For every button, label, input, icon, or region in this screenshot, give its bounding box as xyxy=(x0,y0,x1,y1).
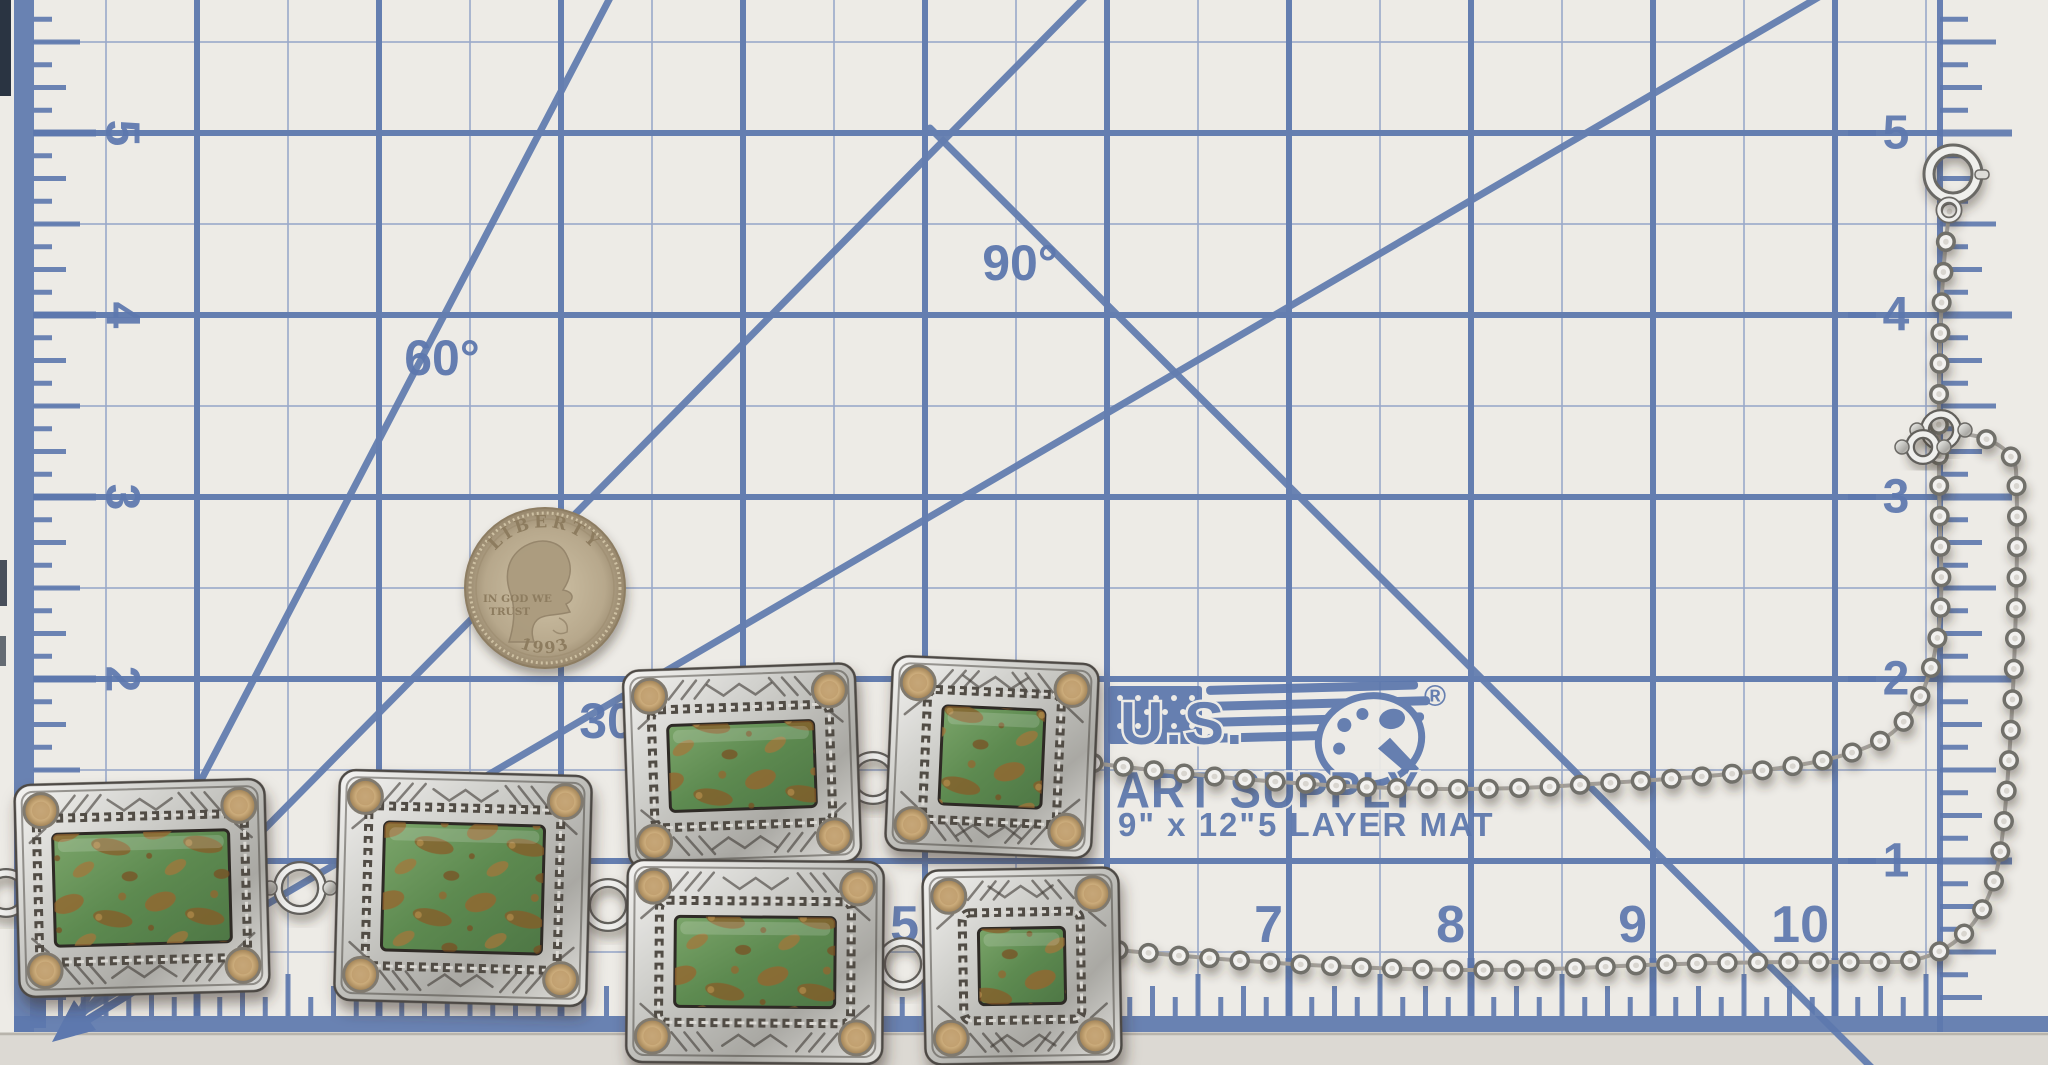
left-ruler-number: 3 xyxy=(96,484,149,511)
mat-layers-label: 5 LAYER MAT xyxy=(1258,806,1495,843)
plaque-6 xyxy=(922,867,1121,1064)
mat-left-edge-dark xyxy=(0,0,11,96)
bottom-ruler-number: 10 xyxy=(1771,896,1829,954)
mat-size-label: 9" x 12" xyxy=(1118,806,1257,843)
scene-svg: 60° 90° 30° 5 4 3 2 5 4 3 2 1 5 6 7 8 9 … xyxy=(0,0,2048,1065)
bottom-ruler-number: 7 xyxy=(1254,896,1283,954)
right-ruler-number: 3 xyxy=(1883,471,1910,524)
registered-mark: ® xyxy=(1424,680,1446,713)
photo-jewelry-on-cutting-mat: 60° 90° 30° 5 4 3 2 5 4 3 2 1 5 6 7 8 9 … xyxy=(0,0,2048,1065)
plaque-5 xyxy=(885,656,1099,859)
bottom-ruler-number: 9 xyxy=(1618,896,1647,954)
plaque-2 xyxy=(334,770,592,1007)
bottom-ruler-number: 8 xyxy=(1436,896,1465,954)
mat-left-edge-mark2 xyxy=(0,636,6,666)
plaque-4 xyxy=(626,860,884,1064)
left-ruler-number: 5 xyxy=(96,120,149,147)
right-ruler-number: 1 xyxy=(1883,835,1910,888)
right-ruler-number: 2 xyxy=(1883,653,1910,706)
plaque-1 xyxy=(14,779,269,997)
left-ruler-number: 4 xyxy=(96,302,149,329)
mat-left-edge-mark xyxy=(0,560,7,606)
logo-line1: U.S. xyxy=(1120,690,1245,757)
angle-label-90: 90° xyxy=(982,235,1058,291)
coin-motto-line2: TRUST xyxy=(489,606,530,618)
right-ruler-number: 4 xyxy=(1883,289,1910,342)
left-ruler-number: 2 xyxy=(96,666,149,693)
right-ruler-number: 5 xyxy=(1883,107,1910,160)
coin-motto-line1: IN GOD WE xyxy=(483,593,552,605)
plaque-3 xyxy=(623,663,862,869)
quarter-coin: LIBERTY 1993 IN GOD WE TRUST xyxy=(465,508,625,668)
angle-label-60: 60° xyxy=(404,330,480,386)
